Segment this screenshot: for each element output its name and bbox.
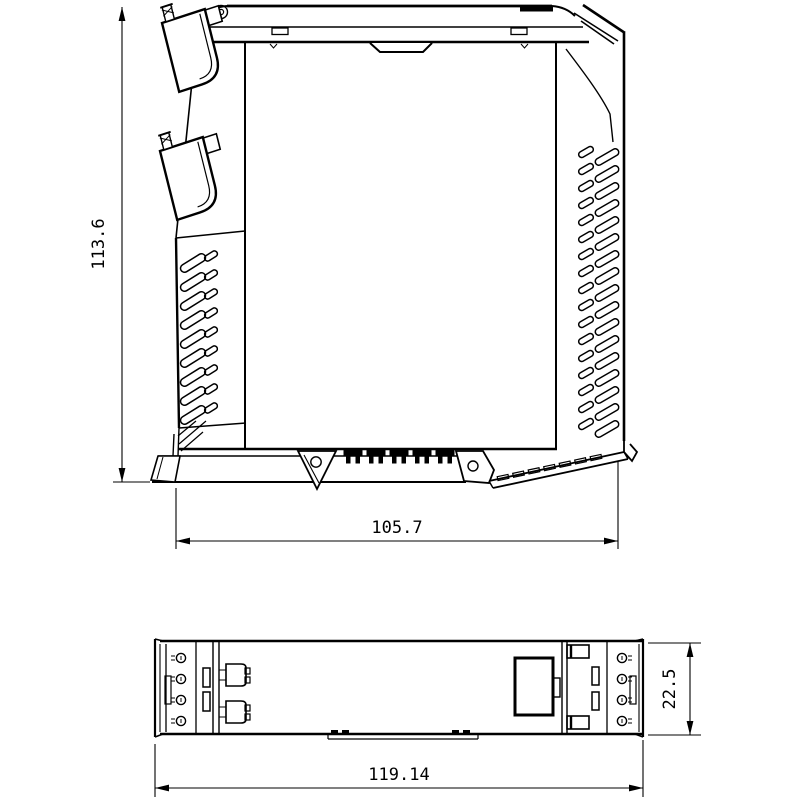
left-vent-panel (176, 231, 246, 451)
cap-latch-slot-left (272, 28, 288, 35)
left-screws (171, 653, 186, 725)
cap-marker (520, 7, 553, 12)
dimension-depth: 22.5 (648, 643, 701, 735)
dim-height-label: 113.6 (89, 218, 109, 269)
right-vent-panel (578, 145, 620, 438)
left-slot-1 (203, 668, 210, 687)
cap-center-notch (370, 43, 432, 52)
technical-drawing: 113.6 105.7 22.5 119.14 (0, 0, 800, 800)
mounting-bracket-left (298, 451, 336, 489)
cap-latch-slot-right (511, 28, 527, 35)
right-foot (624, 441, 637, 461)
left-plugs (219, 664, 250, 723)
dim-overall-width-label: 119.14 (368, 765, 429, 785)
right-clips (567, 645, 589, 729)
left-vent-slots (179, 250, 219, 426)
right-vent-slots (578, 145, 620, 438)
terminal-connector-top (158, 0, 235, 92)
bottom-assembly (151, 428, 637, 489)
front-view (151, 0, 637, 489)
top-right-chamfer (574, 5, 625, 44)
left-bottom-hatch (178, 421, 206, 451)
left-slot-2 (203, 692, 210, 711)
terminal-connector-bottom (156, 118, 233, 220)
dimension-overall-width: 119.14 (155, 740, 643, 797)
din-foot-left (151, 456, 180, 482)
mounting-hole-right (468, 461, 478, 471)
right-fold-line (566, 49, 613, 142)
left-terminal-block (155, 639, 196, 737)
connector-window (515, 658, 560, 715)
dim-width-front-label: 105.7 (371, 518, 422, 538)
mounting-hole-left (311, 457, 321, 467)
right-slot-1 (592, 667, 599, 685)
dim-depth-label: 22.5 (660, 669, 680, 710)
top-cap (193, 6, 589, 53)
dimension-height: 113.6 (89, 7, 150, 482)
bottom-view (155, 639, 643, 739)
dimension-width-front: 105.7 (176, 461, 618, 549)
mounting-bracket-right (456, 451, 494, 483)
terminal-pins (344, 450, 455, 464)
right-terminal-block (562, 639, 643, 737)
right-slot-2 (592, 692, 599, 710)
